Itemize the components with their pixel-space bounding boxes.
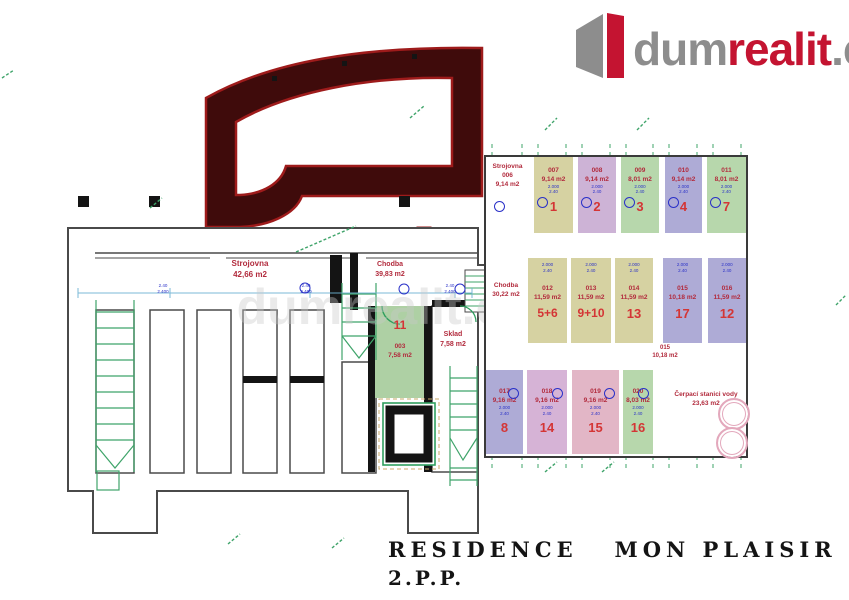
dim-text: 2.000 2.40 xyxy=(534,184,573,196)
unit-cell-010: 010 9,14 m2 2.000 2.40 4 xyxy=(665,157,702,233)
water-tank-circle-1 xyxy=(718,398,750,430)
dim-text-plan-1: 2.40 2.400 xyxy=(145,283,181,295)
unit-cell-017: 017 9,16 m2 2.000 2.40 8 xyxy=(486,370,523,454)
label-strojovna-main: Strojovna 42,66 m2 xyxy=(210,258,290,280)
unit-cell-011: 011 8,01 m2 2.000 2.40 7 xyxy=(707,157,746,233)
cell-label: 012 11,59 m2 xyxy=(528,284,567,302)
unit-cell-020: 020 8,03 m2 2.000 2.40 16 xyxy=(623,370,653,454)
unit-cell-013: 2.000 2.40 013 11,59 m2 9+10 xyxy=(571,258,611,343)
dim-text: 2.000 2.40 xyxy=(707,184,746,196)
logo-cz: .cz xyxy=(831,23,849,75)
ref-circle-icon xyxy=(581,197,592,208)
label-sklad: Sklad 7,58 m2 xyxy=(428,330,478,350)
drawing-floor-label: 2.P.P. xyxy=(388,566,464,590)
unit-cell-012: 2.000 2.40 012 11,59 m2 5+6 xyxy=(528,258,567,343)
unit-number: 9+10 xyxy=(571,306,611,320)
label-chodba-grid: Chodba 30,22 m2 xyxy=(486,281,526,299)
unit-cell-014: 2.000 2.40 014 11,59 m2 13 xyxy=(615,258,653,343)
dim-text: 2.000 2.40 xyxy=(486,405,523,417)
unit-number: 8 xyxy=(486,420,523,435)
stairs-right xyxy=(450,366,477,486)
cell-label: 009 8,01 m2 xyxy=(621,166,659,184)
cell-label: 011 8,01 m2 xyxy=(707,166,746,184)
ref-circle-icon xyxy=(624,197,635,208)
dim-text: 2.000 2.40 xyxy=(571,262,611,274)
cell-label: 007 9,14 m2 xyxy=(534,166,573,184)
unit-number: 13 xyxy=(615,306,653,321)
dumrealit-logo-icon xyxy=(572,10,628,82)
cell-label: 016 11,59 m2 xyxy=(708,284,746,302)
dim-text: 2.000 2.40 xyxy=(528,262,567,274)
left-plan-outline xyxy=(68,196,493,533)
unit-cell-009: 009 8,01 m2 2.000 2.40 3 xyxy=(621,157,659,233)
floorplan-page: 1 dumrealit.cz dumrealit.cz Strojovna 42… xyxy=(0,0,849,600)
cell-label: Strojovna 006 9,14 m2 xyxy=(486,162,529,189)
ref-circle-icon xyxy=(494,201,505,212)
unit-cell-007: 007 9,14 m2 2.000 2.40 1 xyxy=(534,157,573,233)
unit-cell-015: 2.000 2.40 015 10,18 m2 17 xyxy=(663,258,702,343)
cell-label: 014 11,59 m2 xyxy=(615,284,653,302)
arch-outline xyxy=(206,48,482,261)
dim-text: 2.000 2.40 xyxy=(663,262,702,274)
ref-circle-icon xyxy=(710,197,721,208)
cell-strojovna-006: Strojovna 006 9,14 m2 xyxy=(486,157,529,233)
unit-number: 14 xyxy=(527,420,567,435)
cell-label: 013 11,59 m2 xyxy=(571,284,611,302)
cell-label: 008 9,14 m2 xyxy=(578,166,616,184)
unit-number: 17 xyxy=(663,306,702,321)
room-11-label: 003 7,58 m2 xyxy=(378,342,422,360)
dim-text: 2.000 2.40 xyxy=(578,184,616,196)
dim-text: 2.000 2.40 xyxy=(708,262,746,274)
dim-text: 2.000 2.40 xyxy=(615,262,653,274)
dim-text: 2.000 2.40 xyxy=(527,405,567,417)
ref-circle-icon xyxy=(537,197,548,208)
logo-dum: dum xyxy=(633,23,727,75)
dim-text: 2.000 2.40 xyxy=(623,405,653,417)
dim-text: 2.000 2.40 xyxy=(621,184,659,196)
label-between-rows: 015 10,18 m2 xyxy=(640,344,690,361)
unit-number: 16 xyxy=(623,420,653,435)
dim-text-plan-3: 2.40 2.400 xyxy=(432,283,468,295)
dim-text: 2.000 2.40 xyxy=(572,405,619,417)
dim-text-plan-2: 2.40 2.400 xyxy=(288,283,324,295)
unit-number: 12 xyxy=(708,306,746,321)
unit-cell-018: 018 9,16 m2 2.000 2.40 14 xyxy=(527,370,567,454)
cell-label: 015 10,18 m2 xyxy=(663,284,702,302)
unit-number: 5+6 xyxy=(528,306,567,320)
unit-cell-019: 019 9,16 m2 2.000 2.40 15 xyxy=(572,370,619,454)
ref-circle-icon xyxy=(668,197,679,208)
cell-label: 010 9,14 m2 xyxy=(665,166,702,184)
unit-number: 15 xyxy=(572,420,619,435)
water-tank-circle-2 xyxy=(716,427,748,459)
dumrealit-logo: dumrealit.cz xyxy=(633,22,849,76)
elevator-shaft xyxy=(379,399,439,469)
logo-realit: realit xyxy=(727,23,831,75)
drawing-title: RESIDENCE MON PLAISIR xyxy=(388,537,837,562)
room-11-number: 11 xyxy=(380,318,420,332)
stairs-left xyxy=(96,300,134,490)
label-chodba-main: Chodba 39,83 m2 xyxy=(355,260,425,280)
unit-cell-016: 2.000 2.40 016 11,59 m2 12 xyxy=(708,258,746,343)
dim-text: 2.000 2.40 xyxy=(665,184,702,196)
unit-cell-008: 008 9,14 m2 2.000 2.40 2 xyxy=(578,157,616,233)
